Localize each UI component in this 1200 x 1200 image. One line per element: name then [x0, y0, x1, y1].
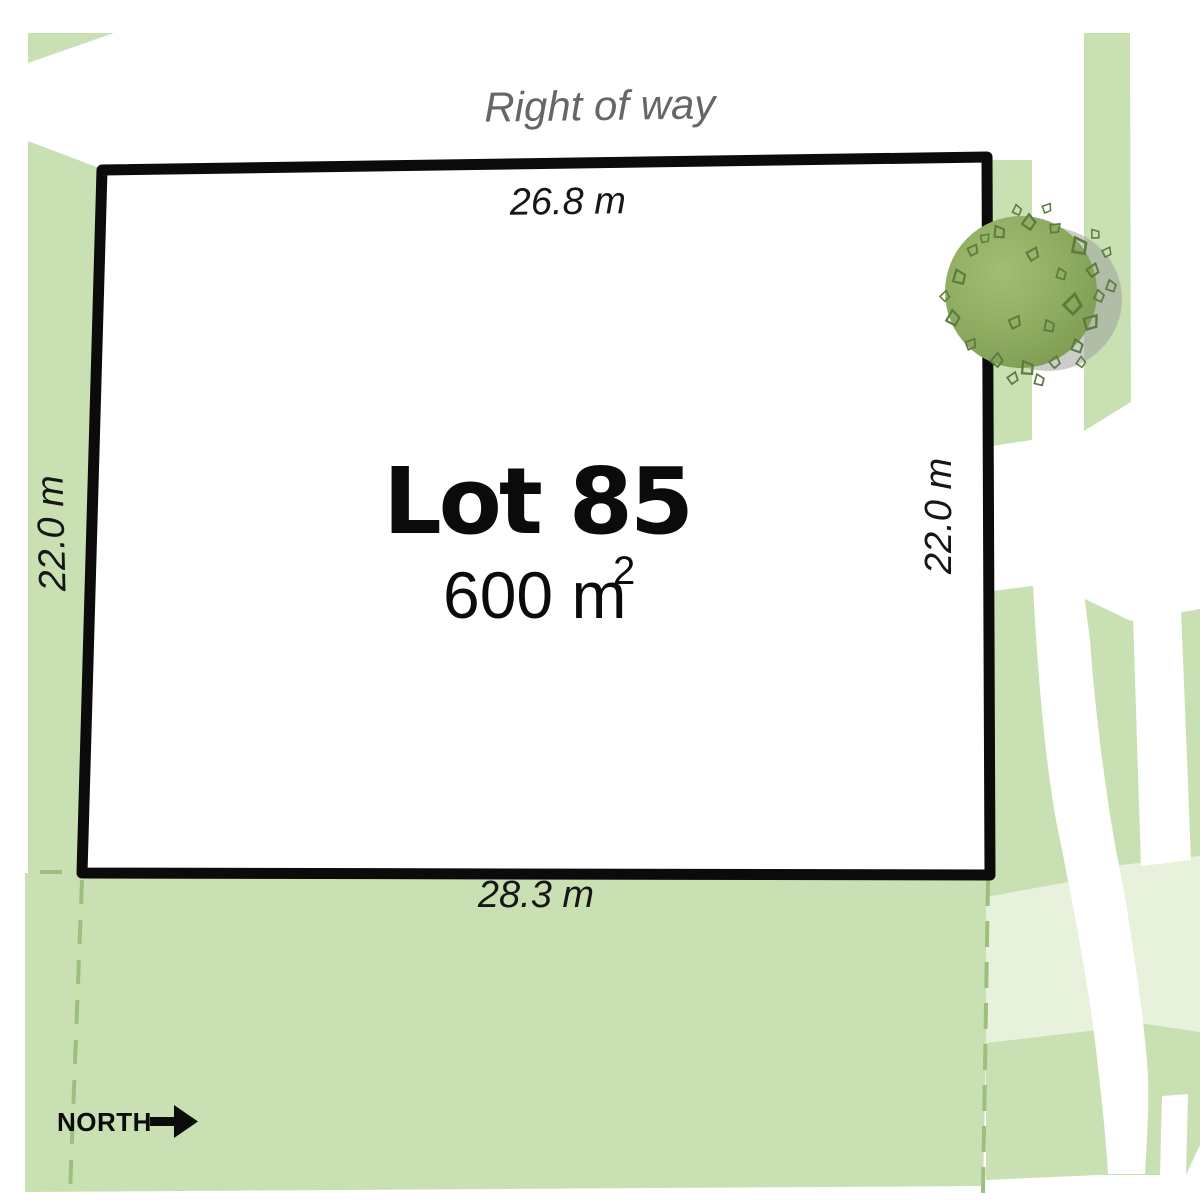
- dimension-right: 22.0 m: [918, 458, 960, 575]
- lot-name: Lot 85: [383, 448, 691, 555]
- dimension-top: 26.8 m: [508, 180, 626, 224]
- lot-area-exponent: 2: [613, 549, 635, 593]
- lot-plan-figure: Right of way 26.8 m 22.0 m 22.0 m 28.3 m…: [0, 0, 1200, 1200]
- road-notch-bottom-right: [1160, 1094, 1188, 1175]
- site-plan-page: Right of way 26.8 m 22.0 m 22.0 m 28.3 m…: [0, 0, 1200, 1200]
- dimension-left: 22.0 m: [29, 475, 74, 593]
- lot-area: 600 m: [443, 558, 626, 632]
- greenspace-bottom-block: [25, 873, 990, 1192]
- north-indicator: NORTH: [57, 1105, 198, 1138]
- verge-strip-upper-right: [1084, 33, 1131, 431]
- road-band-right: [1133, 609, 1191, 866]
- north-label: NORTH: [57, 1107, 152, 1137]
- dimension-bottom: 28.3 m: [477, 874, 594, 916]
- right-of-way-label: Right of way: [484, 80, 719, 130]
